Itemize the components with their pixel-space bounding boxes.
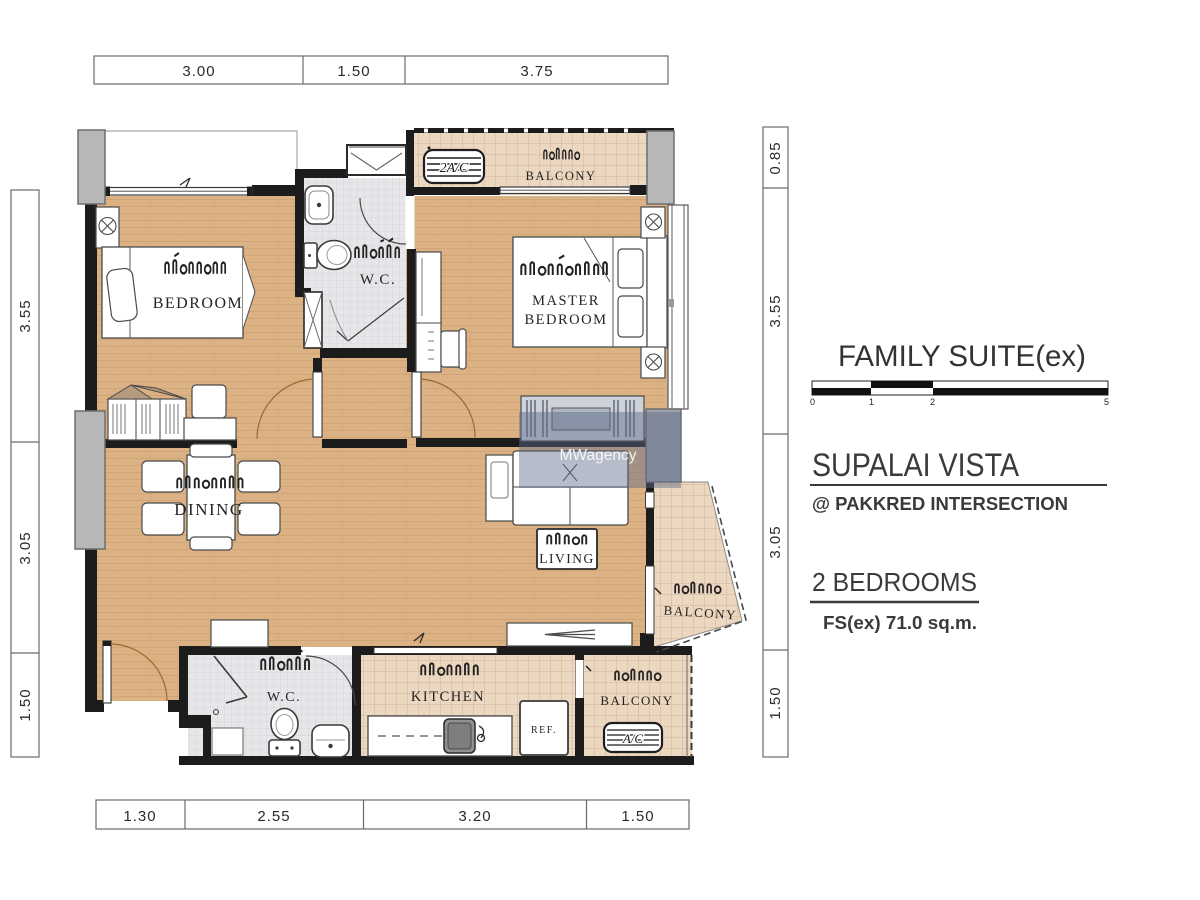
svg-text:3.55: 3.55: [767, 294, 784, 327]
svg-text:A/C: A/C: [622, 731, 644, 746]
svg-text:3.75: 3.75: [520, 63, 553, 80]
svg-text:3.05: 3.05: [767, 525, 784, 558]
svg-text:KITCHEN: KITCHEN: [411, 689, 485, 705]
svg-text:1.50: 1.50: [17, 688, 34, 721]
svg-text:FAMILY SUITE(ex): FAMILY SUITE(ex): [838, 340, 1086, 373]
svg-text:SUPALAI VISTA: SUPALAI VISTA: [812, 447, 1020, 483]
svg-text:1: 1: [869, 397, 874, 407]
svg-text:2A/C: 2A/C: [440, 161, 469, 176]
svg-text:BALCONY: BALCONY: [526, 169, 597, 183]
svg-text:0.85: 0.85: [767, 141, 784, 174]
svg-text:1.50: 1.50: [337, 63, 370, 80]
svg-text:3.20: 3.20: [458, 808, 491, 825]
svg-text:LIVING: LIVING: [539, 551, 595, 566]
svg-text:FS(ex) 71.0 sq.m.: FS(ex) 71.0 sq.m.: [823, 613, 977, 633]
svg-text:2: 2: [930, 397, 935, 407]
svg-text:5: 5: [1104, 397, 1109, 407]
svg-text:0: 0: [810, 397, 815, 407]
svg-text:3.55: 3.55: [17, 299, 34, 332]
svg-text:DINING: DINING: [174, 500, 243, 519]
svg-text:BALCONY: BALCONY: [600, 693, 673, 708]
svg-text:1.50: 1.50: [767, 686, 784, 719]
svg-text:W.C.: W.C.: [267, 690, 301, 705]
svg-text:1.50: 1.50: [621, 808, 654, 825]
svg-text:W.C.: W.C.: [360, 272, 396, 288]
svg-text:2.55: 2.55: [257, 808, 290, 825]
svg-text:@ PAKKRED INTERSECTION: @ PAKKRED INTERSECTION: [812, 494, 1068, 514]
svg-text:MASTER: MASTER: [532, 293, 600, 309]
svg-text:3.00: 3.00: [182, 63, 215, 80]
svg-text:BEDROOM: BEDROOM: [524, 312, 607, 328]
svg-text:2 BEDROOMS: 2 BEDROOMS: [812, 567, 977, 597]
svg-text:3.05: 3.05: [17, 531, 34, 564]
svg-text:REF.: REF.: [531, 725, 557, 736]
svg-text:MWagency: MWagency: [560, 447, 637, 464]
svg-text:BEDROOM: BEDROOM: [153, 295, 244, 312]
svg-text:1.30: 1.30: [123, 808, 156, 825]
